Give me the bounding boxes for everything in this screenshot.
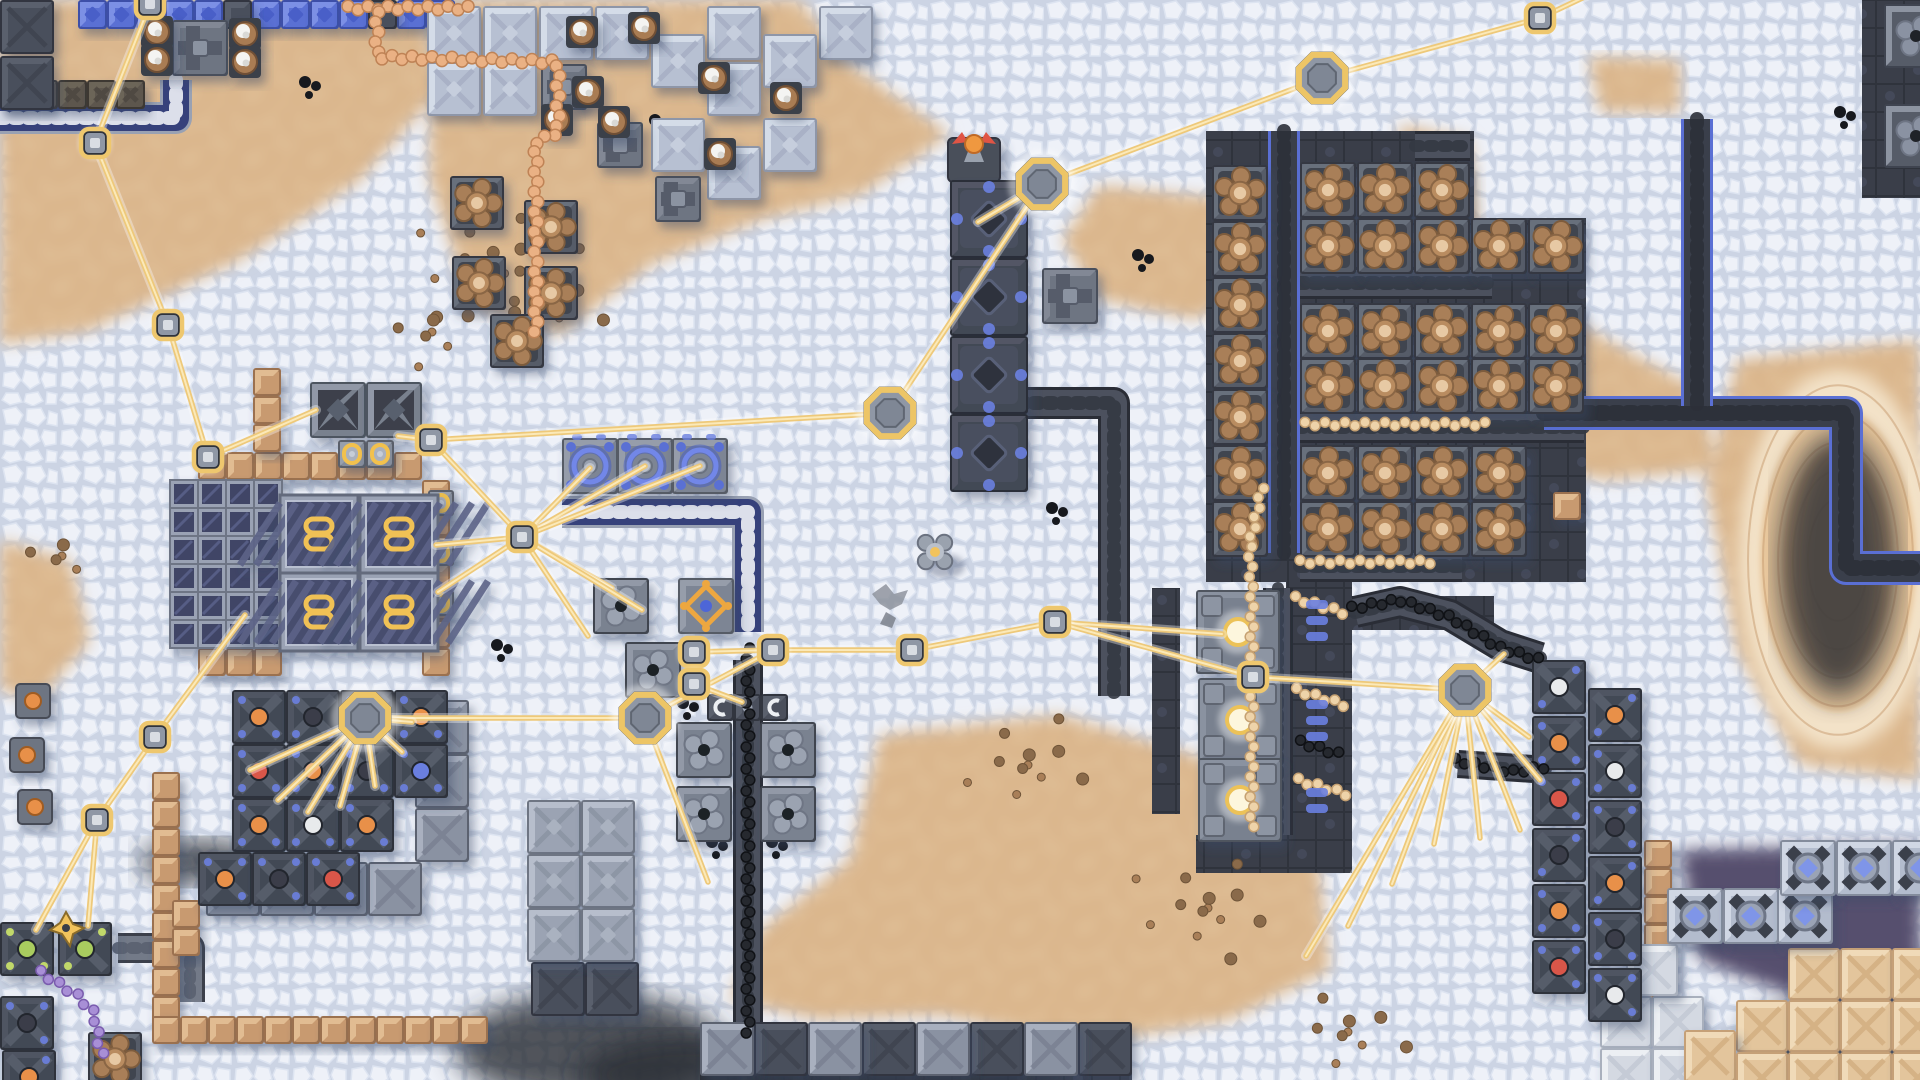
- blue-wall[interactable]: [310, 0, 339, 29]
- plated-wall[interactable]: [527, 908, 581, 962]
- turret-block[interactable]: [1588, 856, 1642, 910]
- turret-block[interactable]: [1532, 884, 1586, 938]
- sand-patch: [1588, 56, 1680, 112]
- phase-wall[interactable]: [1780, 840, 1836, 896]
- power-node[interactable]: [506, 521, 538, 553]
- power-node[interactable]: [152, 309, 184, 341]
- mechanical-drill[interactable]: [1212, 277, 1268, 333]
- turret-block[interactable]: [1588, 800, 1642, 854]
- power-node[interactable]: [757, 634, 789, 666]
- power-node[interactable]: [415, 424, 447, 456]
- copper-wall[interactable]: [152, 800, 180, 828]
- large-power-node[interactable]: [1008, 150, 1076, 218]
- sandstone-wall[interactable]: [1788, 948, 1840, 1000]
- phase-wall[interactable]: [1777, 888, 1833, 944]
- dark-wall[interactable]: [585, 962, 639, 1016]
- turret-block[interactable]: [306, 852, 360, 906]
- copper-wall[interactable]: [394, 452, 422, 480]
- power-node[interactable]: [134, 0, 166, 20]
- titanium-wall[interactable]: [916, 1022, 970, 1076]
- dark-wall[interactable]: [754, 1022, 808, 1076]
- mechanical-drill[interactable]: [1528, 218, 1584, 274]
- dome-turret[interactable]: [572, 76, 604, 108]
- power-node[interactable]: [81, 804, 113, 836]
- sandstone-wall[interactable]: [1840, 1000, 1892, 1052]
- mechanical-drill[interactable]: [1528, 358, 1584, 414]
- cryo-block[interactable]: [950, 336, 1028, 414]
- overdrive-projector[interactable]: [678, 578, 734, 634]
- mechanical-drill[interactable]: [1414, 303, 1470, 359]
- power-node[interactable]: [678, 636, 710, 668]
- dome-turret[interactable]: [566, 16, 598, 48]
- copper-wall[interactable]: [310, 452, 338, 480]
- sandstone-wall[interactable]: [1840, 948, 1892, 1000]
- power-node[interactable]: [896, 634, 928, 666]
- dark-wall[interactable]: [862, 1022, 916, 1076]
- phase-wall[interactable]: [1836, 840, 1892, 896]
- large-power-node[interactable]: [611, 684, 679, 752]
- blue-wall[interactable]: [281, 0, 310, 29]
- turret-block[interactable]: [1588, 912, 1642, 966]
- turret-block[interactable]: [1588, 744, 1642, 798]
- copper-wall[interactable]: [404, 1016, 432, 1044]
- turret-block[interactable]: [198, 852, 252, 906]
- turret-block[interactable]: [252, 852, 306, 906]
- pulverizer[interactable]: [760, 786, 816, 842]
- plated-wall[interactable]: [581, 800, 635, 854]
- mechanical-drill[interactable]: [1300, 358, 1356, 414]
- large-power-node[interactable]: [1288, 44, 1356, 112]
- cryo-block[interactable]: [950, 414, 1028, 492]
- mechanical-drill[interactable]: [1357, 218, 1413, 274]
- dome-turret[interactable]: [770, 82, 802, 114]
- mechanical-drill[interactable]: [1212, 389, 1268, 445]
- mechanical-drill[interactable]: [1414, 445, 1470, 501]
- dark-wall[interactable]: [0, 56, 54, 110]
- bridge-segment[interactable]: [1306, 716, 1328, 725]
- blue-wall[interactable]: [78, 0, 107, 29]
- pulverizer[interactable]: [760, 722, 816, 778]
- turret-block[interactable]: [232, 690, 286, 744]
- mechanical-drill[interactable]: [1357, 162, 1413, 218]
- turret-block[interactable]: [1588, 688, 1642, 742]
- titanium-wall[interactable]: [415, 808, 469, 862]
- bridge-segment[interactable]: [1306, 804, 1328, 813]
- copper-wall[interactable]: [254, 452, 282, 480]
- mechanical-drill[interactable]: [1357, 501, 1413, 557]
- mechanical-drill[interactable]: [1471, 218, 1527, 274]
- plated-wall[interactable]: [527, 800, 581, 854]
- mechanical-drill[interactable]: [1414, 501, 1470, 557]
- power-node[interactable]: [1237, 661, 1269, 693]
- mechanical-drill[interactable]: [1471, 303, 1527, 359]
- smelter[interactable]: [1198, 758, 1282, 842]
- dark-wall[interactable]: [970, 1022, 1024, 1076]
- copper-wall[interactable]: [254, 648, 282, 676]
- power-node[interactable]: [1039, 606, 1071, 638]
- scrap-wall[interactable]: [58, 80, 87, 109]
- small-turret[interactable]: [18, 790, 52, 824]
- bridge-segment[interactable]: [1306, 700, 1328, 709]
- small-turret[interactable]: [16, 684, 50, 718]
- plated-wall[interactable]: [581, 908, 635, 962]
- titanium-wall[interactable]: [1024, 1022, 1078, 1076]
- copper-wall[interactable]: [432, 1016, 460, 1044]
- mechanical-drill[interactable]: [1414, 218, 1470, 274]
- power-node[interactable]: [192, 441, 224, 473]
- game-viewport: [0, 0, 1920, 1080]
- copper-wall[interactable]: [253, 396, 281, 424]
- plated-wall[interactable]: [707, 6, 761, 60]
- sandstone-wall[interactable]: [1892, 948, 1920, 1000]
- sandstone-wall[interactable]: [1788, 1000, 1840, 1052]
- power-node[interactable]: [139, 721, 171, 753]
- dome-turret[interactable]: [628, 12, 660, 44]
- plated-wall[interactable]: [763, 118, 817, 172]
- copper-wall[interactable]: [172, 900, 200, 928]
- container-block[interactable]: [761, 694, 788, 721]
- turret-block[interactable]: [1532, 716, 1586, 770]
- battery[interactable]: [338, 440, 366, 468]
- large-power-node[interactable]: [331, 684, 399, 752]
- sandstone-wall[interactable]: [1840, 1052, 1892, 1080]
- copper-wall[interactable]: [253, 368, 281, 396]
- bridge-segment[interactable]: [1306, 632, 1328, 641]
- blue-wall[interactable]: [107, 0, 136, 29]
- turret-block[interactable]: [232, 798, 286, 852]
- plated-wall[interactable]: [581, 854, 635, 908]
- bridge-segment[interactable]: [1306, 788, 1328, 797]
- plated-wall[interactable]: [427, 62, 481, 116]
- mechanical-drill[interactable]: [1414, 162, 1470, 218]
- mechanical-drill[interactable]: [1300, 501, 1356, 557]
- copper-wall[interactable]: [264, 1016, 292, 1044]
- mechanical-drill[interactable]: [450, 176, 504, 230]
- battery[interactable]: [366, 440, 394, 468]
- copper-wall[interactable]: [152, 968, 180, 996]
- pulverizer[interactable]: [676, 722, 732, 778]
- small-turret[interactable]: [10, 738, 44, 772]
- router-block[interactable]: [1042, 268, 1098, 324]
- router-block[interactable]: [172, 20, 228, 76]
- turret-block[interactable]: [2, 1050, 56, 1080]
- large-power-node[interactable]: [856, 379, 924, 447]
- sandstone-wall[interactable]: [1684, 1030, 1736, 1080]
- missile-turret[interactable]: [948, 132, 1000, 182]
- ore-field: [1152, 588, 1180, 814]
- bridge-segment[interactable]: [1306, 600, 1328, 609]
- turret-block[interactable]: [340, 798, 394, 852]
- plated-wall[interactable]: [483, 62, 537, 116]
- power-node[interactable]: [79, 127, 111, 159]
- titanium-wall[interactable]: [368, 862, 422, 916]
- bridge-segment[interactable]: [1306, 616, 1328, 625]
- copper-wall[interactable]: [152, 856, 180, 884]
- mechanical-drill[interactable]: [1357, 358, 1413, 414]
- copper-wall[interactable]: [460, 1016, 488, 1044]
- turret-block[interactable]: [1532, 828, 1586, 882]
- pulverizer[interactable]: [1884, 104, 1920, 168]
- router-block[interactable]: [655, 176, 701, 222]
- map-canvas[interactable]: [0, 0, 1920, 1080]
- plated-wall[interactable]: [763, 34, 817, 88]
- power-node[interactable]: [678, 668, 710, 700]
- sandstone-wall[interactable]: [1736, 1052, 1788, 1080]
- mechanical-drill[interactable]: [1528, 303, 1584, 359]
- bridge-segment[interactable]: [1306, 732, 1328, 741]
- dome-turret[interactable]: [141, 44, 173, 76]
- dark-wall[interactable]: [531, 962, 585, 1016]
- mechanical-drill[interactable]: [1300, 218, 1356, 274]
- mechanical-drill[interactable]: [1471, 358, 1527, 414]
- plated-wall[interactable]: [527, 854, 581, 908]
- copper-wall[interactable]: [172, 928, 200, 956]
- mechanical-drill[interactable]: [1471, 501, 1527, 557]
- mechanical-drill[interactable]: [1300, 162, 1356, 218]
- dark-wall[interactable]: [1078, 1022, 1132, 1076]
- dome-turret[interactable]: [698, 62, 730, 94]
- mechanical-drill[interactable]: [1212, 333, 1268, 389]
- copper-wall[interactable]: [1644, 840, 1672, 868]
- titanium-wall[interactable]: [808, 1022, 862, 1076]
- copper-wall[interactable]: [1553, 492, 1581, 520]
- copper-wall[interactable]: [152, 772, 180, 800]
- copper-wall[interactable]: [208, 1016, 236, 1044]
- dome-turret[interactable]: [229, 46, 261, 78]
- copper-wall[interactable]: [348, 1016, 376, 1044]
- mechanical-drill[interactable]: [1414, 358, 1470, 414]
- copper-wall[interactable]: [180, 1016, 208, 1044]
- sandstone-wall[interactable]: [1892, 1000, 1920, 1052]
- dome-turret[interactable]: [598, 106, 630, 138]
- rock-wall[interactable]: [1600, 1048, 1652, 1080]
- phase-wall[interactable]: [1667, 888, 1723, 944]
- dome-turret[interactable]: [229, 18, 261, 50]
- mechanical-drill[interactable]: [1300, 303, 1356, 359]
- large-power-node[interactable]: [1431, 656, 1499, 724]
- mechanical-drill[interactable]: [452, 256, 506, 310]
- mechanical-drill[interactable]: [1212, 221, 1268, 277]
- copper-wall[interactable]: [282, 452, 310, 480]
- pulverizer[interactable]: [1884, 4, 1920, 68]
- dark-wall[interactable]: [0, 0, 54, 54]
- copper-wall[interactable]: [152, 828, 180, 856]
- mechanical-drill[interactable]: [1212, 165, 1268, 221]
- phase-wall[interactable]: [1723, 888, 1779, 944]
- mechanical-drill[interactable]: [1357, 445, 1413, 501]
- copper-wall[interactable]: [226, 452, 254, 480]
- sandstone-wall[interactable]: [1788, 1052, 1840, 1080]
- sandstone-wall[interactable]: [1736, 1000, 1788, 1052]
- plated-wall[interactable]: [651, 118, 705, 172]
- copper-wall[interactable]: [292, 1016, 320, 1044]
- copper-wall[interactable]: [376, 1016, 404, 1044]
- sandstone-wall[interactable]: [1892, 1052, 1920, 1080]
- power-node[interactable]: [1524, 2, 1556, 34]
- mechanical-drill[interactable]: [1357, 303, 1413, 359]
- turret-block[interactable]: [1532, 660, 1586, 714]
- copper-wall[interactable]: [152, 1016, 180, 1044]
- phase-wall[interactable]: [1892, 840, 1920, 896]
- mechanical-drill[interactable]: [1471, 445, 1527, 501]
- plated-wall[interactable]: [819, 6, 873, 60]
- mechanical-drill[interactable]: [1300, 445, 1356, 501]
- turret-block[interactable]: [1532, 940, 1586, 994]
- turret-block[interactable]: [1588, 968, 1642, 1022]
- copper-wall[interactable]: [320, 1016, 348, 1044]
- dome-turret[interactable]: [704, 138, 736, 170]
- graphite-press[interactable]: [366, 382, 422, 438]
- copper-wall[interactable]: [236, 1016, 264, 1044]
- smelter[interactable]: [1198, 678, 1282, 762]
- turret-block[interactable]: [0, 996, 54, 1050]
- copper-wall[interactable]: [226, 648, 254, 676]
